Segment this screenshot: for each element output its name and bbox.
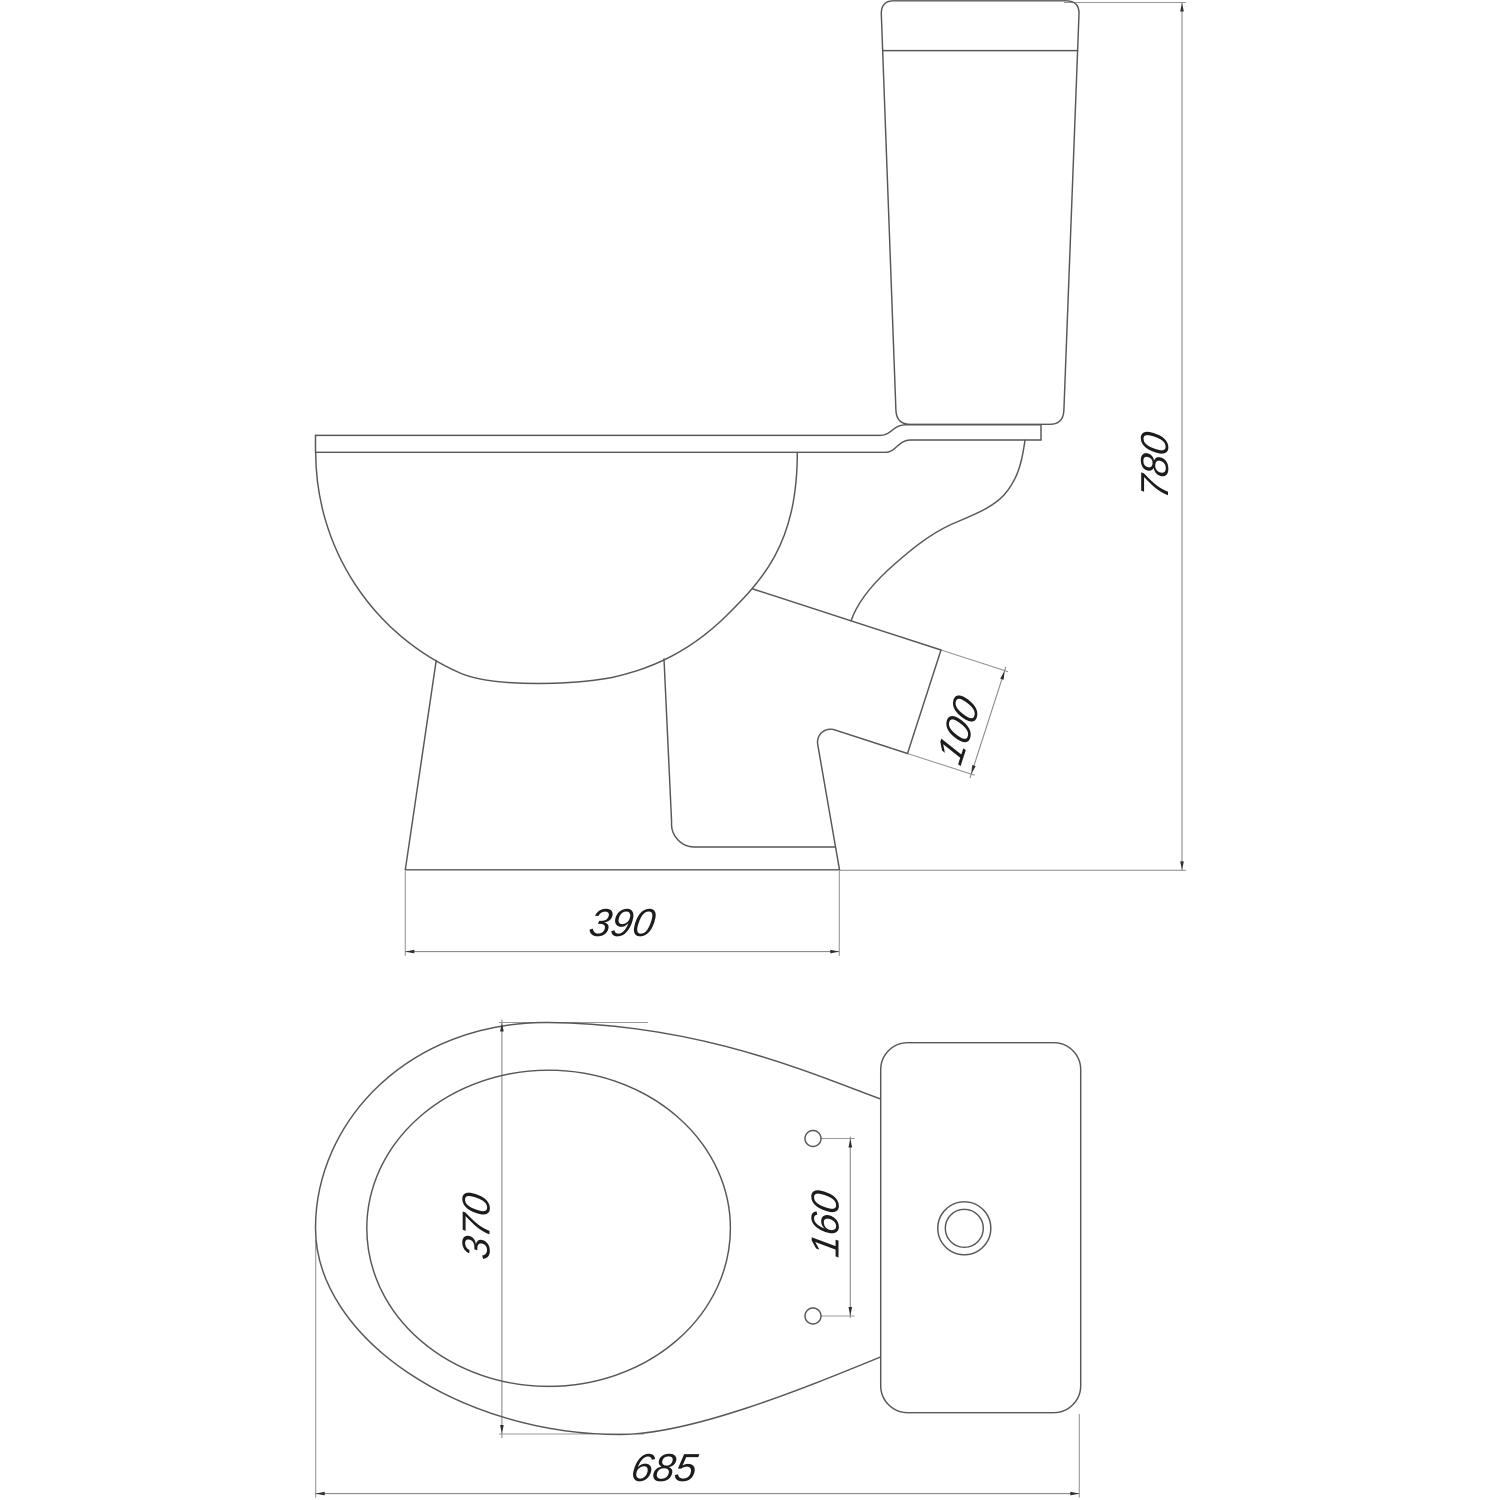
svg-text:685: 685 [628, 1446, 701, 1490]
svg-text:390: 390 [586, 901, 659, 945]
svg-text:370: 370 [455, 1190, 499, 1263]
svg-text:780: 780 [1133, 429, 1177, 502]
svg-text:160: 160 [804, 1187, 848, 1260]
